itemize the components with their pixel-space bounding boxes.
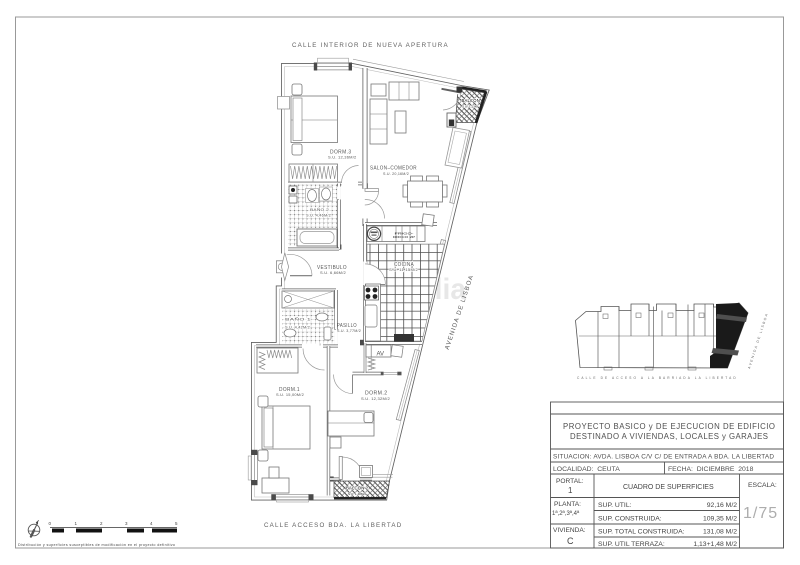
svg-text:LOCALIDAD: CEUTA: LOCALIDAD: CEUTA: [553, 466, 620, 473]
svg-text:Distribución y superficies: Distribución y superficies susceptibles …: [18, 543, 175, 547]
svg-text:DESTINADO A VIVIENDAS, LOCA: DESTINADO A VIVIENDAS, LOCALES y GARAJES: [570, 432, 768, 441]
svg-text:BAÑO 1: BAÑO 1: [285, 317, 311, 322]
svg-text:S.U. 4,46M/2: S.U. 4,46M/2: [306, 214, 331, 218]
svg-text:109,35 M/2: 109,35 M/2: [703, 516, 737, 523]
svg-text:1/75: 1/75: [743, 505, 778, 522]
svg-text:PLANTA:: PLANTA:: [554, 501, 581, 508]
svg-text:1: 1: [568, 486, 573, 495]
svg-text:CUADRO DE SUPERFICIES: CUADRO DE SUPERFICIES: [623, 484, 714, 491]
svg-text:AV: AV: [377, 352, 385, 358]
svg-text:S.U. 11,15M/2: S.U. 11,15M/2: [389, 268, 418, 272]
svg-text:SUP. UTIL TERRAZA:: SUP. UTIL TERRAZA:: [598, 541, 665, 548]
svg-text:BALCON 2: BALCON 2: [346, 486, 369, 491]
svg-text:RIFICO 2P: RIFICO 2P: [393, 235, 415, 239]
svg-text:ESCALA:: ESCALA:: [748, 482, 777, 489]
svg-text:CALLE ACCESO BDA. LA LIBER: CALLE ACCESO BDA. LA LIBERTAD: [264, 522, 402, 529]
svg-text:CALLE INTERIOR DE NUEVA AP: CALLE INTERIOR DE NUEVA APERTURA: [292, 42, 449, 49]
svg-text:1,13+1,48 M/2: 1,13+1,48 M/2: [693, 541, 737, 548]
svg-text:PROYECTO BASICO y DE EJECU: PROYECTO BASICO y DE EJECUCION DE EDIFIC…: [563, 422, 775, 431]
svg-text:DORM.2: DORM.2: [365, 391, 388, 397]
svg-text:PORTAL:: PORTAL:: [556, 478, 584, 485]
svg-text:FECHA: DICIEMBRE 2018: FECHA: DICIEMBRE 2018: [668, 466, 754, 473]
svg-text:SALON–COMEDOR: SALON–COMEDOR: [370, 166, 417, 172]
svg-text:S.U. 1,48M/2: S.U. 1,48M/2: [348, 492, 366, 496]
svg-text:BAÑO 2: BAÑO 2: [310, 207, 329, 212]
svg-text:DORM.1: DORM.1: [279, 387, 300, 393]
svg-text:BALCON: BALCON: [462, 98, 480, 103]
svg-text:S.U. 12,32M/2: S.U. 12,32M/2: [361, 397, 390, 401]
svg-text:SUP. TOTAL CONSTRUIDA:: SUP. TOTAL CONSTRUIDA:: [598, 529, 685, 536]
svg-text:S.U. 1,13M: S.U. 1,13M: [462, 105, 478, 109]
svg-text:92,16 M/2: 92,16 M/2: [707, 502, 737, 509]
svg-text:S.U. 6,66M/2: S.U. 6,66M/2: [320, 271, 346, 275]
svg-text:S.U. 4,42M/2: S.U. 4,42M/2: [285, 326, 310, 330]
svg-text:131,08 M/2: 131,08 M/2: [703, 529, 737, 536]
svg-text:CALLE DE ACCESO A LA BARRIADA: CALLE DE ACCESO A LA BARRIADA LA LIBERTA…: [577, 376, 738, 380]
svg-text:1ª,2ª,3ª,4ª: 1ª,2ª,3ª,4ª: [552, 510, 580, 517]
svg-text:S.U. 3,77M/2: S.U. 3,77M/2: [337, 329, 361, 333]
svg-text:S.U. 15,00M/2: S.U. 15,00M/2: [276, 393, 304, 397]
svg-text:VIVIENDA:: VIVIENDA:: [553, 527, 586, 534]
svg-text:SITUACION: AVDA. LISBOA C/V C/: SITUACION: AVDA. LISBOA C/V C/ DE ENTRAD…: [553, 454, 774, 461]
svg-text:SUP. UTIL:: SUP. UTIL:: [598, 502, 632, 509]
svg-text:S.U. 12,36M/2: S.U. 12,36M/2: [328, 156, 357, 160]
svg-text:S.U. 20,16M/2: S.U. 20,16M/2: [383, 172, 409, 176]
svg-text:C: C: [567, 536, 574, 546]
svg-text:SUP. CONSTRUIDA:: SUP. CONSTRUIDA:: [598, 516, 662, 523]
